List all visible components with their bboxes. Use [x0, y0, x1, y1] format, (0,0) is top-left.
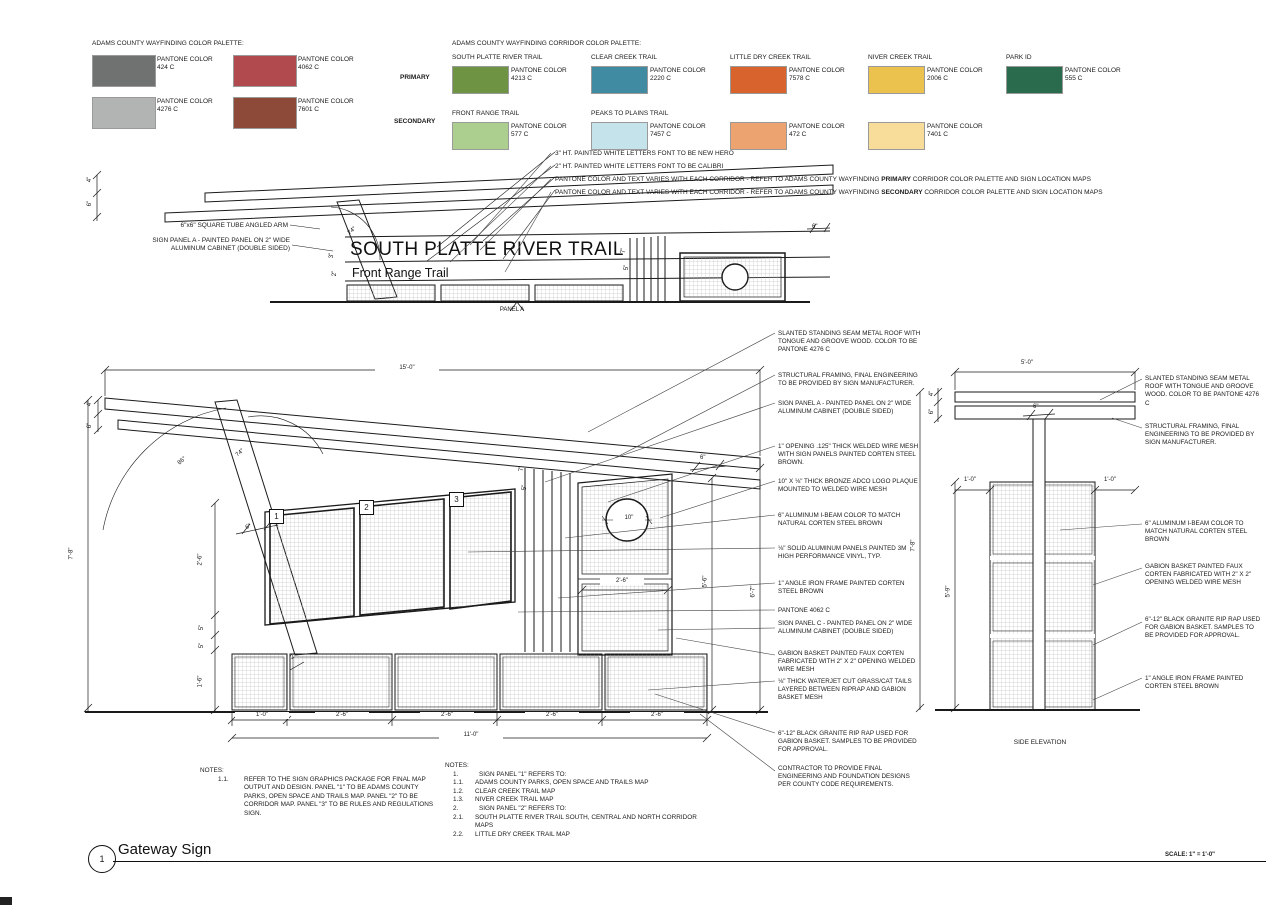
dim: 5"	[522, 485, 529, 490]
swatch-code: 472 C	[789, 131, 806, 138]
dim: 1'-6"	[197, 676, 204, 688]
sign-panel-a-label: SIGN PANEL A - PAINTED PANEL ON 2" WIDEA…	[105, 237, 290, 253]
callout-text: PANTONE 4062 C	[778, 607, 923, 615]
dim-overall-width: 15'-0"	[375, 365, 439, 372]
swatch-2220	[591, 66, 648, 94]
swatch-label: PANTONE COLOR	[298, 98, 354, 105]
dim: 5'-0"	[1000, 360, 1054, 367]
primary-label: PRIMARY	[400, 74, 430, 82]
note-text: NIVER CREEK TRAIL MAP	[475, 796, 745, 805]
callout-text: STRUCTURAL FRAMING, FINAL ENGINEERING TO…	[778, 372, 923, 388]
swatch-7401	[868, 122, 925, 150]
swatch-label: PANTONE COLOR	[650, 123, 706, 130]
trail-name: CLEAR CREEK TRAIL	[591, 54, 657, 62]
swatch-code: 7601 C	[298, 106, 319, 113]
swatch-label: PANTONE COLOR	[298, 56, 354, 63]
dim: 6"	[1033, 404, 1038, 411]
dim: 5'-6"	[702, 576, 709, 588]
dim: 7"	[621, 248, 628, 253]
dim: 7"	[519, 466, 526, 471]
trail-name: LITTLE DRY CREEK TRAIL	[730, 54, 811, 62]
swatch-code: 555 C	[1065, 75, 1082, 82]
callout-text: 6"-12" BLACK GRANITE RIP RAP USED FOR GA…	[778, 730, 923, 755]
note-text: LITTLE DRY CREEK TRAIL MAP	[475, 831, 745, 840]
swatch-7578	[730, 66, 787, 94]
drawing-number-bubble: 1	[88, 845, 116, 873]
panel-number-2: 2	[359, 500, 374, 515]
drawing-title: Gateway Sign	[118, 841, 211, 858]
swatch-4062	[233, 55, 297, 87]
note-number: 2.2.	[453, 831, 475, 840]
dim: 2'-6"	[315, 712, 369, 719]
corridor-palette-title: ADAMS COUNTY WAYFINDING CORRIDOR COLOR P…	[452, 40, 641, 48]
scale-note: SCALE: 1" = 1'-0"	[1100, 852, 1215, 858]
front-elevation-drawing	[78, 322, 778, 772]
swatch-label: PANTONE COLOR	[927, 123, 983, 130]
dim: 1'-0"	[950, 477, 990, 484]
swatch-code: 4213 C	[511, 75, 532, 82]
dim: 2'-6"	[600, 578, 644, 585]
secondary-label: SECONDARY	[394, 118, 435, 126]
dim: 6"	[87, 423, 94, 428]
note-number: 1.	[453, 771, 479, 780]
title-rule	[113, 861, 1266, 862]
callout-text: CONTRACTOR TO PROVIDE FINAL ENGINEERING …	[778, 765, 923, 790]
dim: 2'-6"	[420, 712, 474, 719]
swatch-4213	[452, 66, 509, 94]
swatch-label: PANTONE COLOR	[1065, 67, 1121, 74]
note-number: 2.	[453, 805, 479, 814]
callout-text: ⅛" THICK WATERJET CUT GRASS/CAT TAILS LA…	[778, 678, 923, 703]
swatch-code: 7401 C	[927, 131, 948, 138]
note-number: 2.1.	[453, 814, 475, 831]
note-text: REFER TO THE SIGN GRAPHICS PACKAGE FOR F…	[244, 776, 434, 819]
callout-text: STRUCTURAL FRAMING, FINAL ENGINEERING TO…	[1145, 423, 1263, 448]
dim: 6'-7"	[750, 586, 757, 598]
dim: 5"	[199, 643, 206, 648]
callout-text: 10" X ⅛" THICK BRONZE ADCO LOGO PLAQUE M…	[778, 478, 923, 494]
dim: 1'-0"	[235, 712, 289, 719]
callout-text: GABION BASKET PAINTED FAUX CORTEN FABRIC…	[1145, 563, 1263, 588]
swatch-7601	[233, 97, 297, 129]
arm-label: 6"x6" SQUARE TUBE ANGLED ARM	[100, 222, 288, 230]
callout-text: SIGN PANEL C - PAINTED PANEL ON 2" WIDE …	[778, 620, 923, 636]
callout-text: 1" ANGLE IRON FRAME PAINTED CORTEN STEEL…	[1145, 675, 1263, 691]
note-number: 1.1.	[218, 776, 244, 819]
sign-subtitle-text: Front Range Trail	[352, 266, 449, 280]
note-text: CLEAR CREEK TRAIL MAP	[475, 788, 745, 797]
note-number: 1.3.	[453, 796, 475, 805]
dim: 6"	[929, 409, 936, 414]
swatch-label: PANTONE COLOR	[650, 67, 706, 74]
dim: 7'-8"	[910, 540, 917, 552]
callout-text: 6" ALUMINUM I-BEAM COLOR TO MATCH NATURA…	[778, 512, 923, 528]
dim: 2'-6"	[525, 712, 579, 719]
callout-text: 1" ANGLE IRON FRAME PAINTED CORTEN STEEL…	[778, 580, 923, 596]
swatch-label: PANTONE COLOR	[789, 67, 845, 74]
callout-text: GABION BASKET PAINTED FAUX CORTEN FABRIC…	[778, 650, 923, 675]
note-number: 1.2.	[453, 788, 475, 797]
dim: 6"	[87, 201, 94, 206]
dim: 1'-0"	[1090, 477, 1130, 484]
callout-text: SIGN PANEL A - PAINTED PANEL ON 2" WIDE …	[778, 400, 923, 416]
trail-name: PARK ID	[1006, 54, 1032, 62]
swatch-555	[1006, 66, 1063, 94]
callout-text: 6" ALUMINUM I-BEAM COLOR TO MATCH NATURA…	[1145, 520, 1263, 545]
swatch-code: 2220 C	[650, 75, 671, 82]
dim: 10"	[613, 515, 645, 522]
swatch-code: 2006 C	[927, 75, 948, 82]
side-elevation-caption: SIDE ELEVATION	[990, 739, 1090, 747]
callout-text: 6"-12" BLACK GRANITE RIP RAP USED FOR GA…	[1145, 616, 1263, 641]
dim: 3"	[329, 253, 336, 258]
sheet-corner-mark	[0, 897, 12, 905]
swatch-code: 4062 C	[298, 64, 319, 71]
dim: 2"	[332, 271, 339, 276]
dim: 11'-0"	[439, 732, 503, 739]
dim: 6"	[812, 224, 817, 231]
swatch-code: 424 C	[157, 64, 174, 71]
swatch-code: 577 C	[511, 131, 528, 138]
callout-text: ⅛" SOLID ALUMINUM PANELS PAINTED 3M HIGH…	[778, 545, 923, 561]
swatch-label: PANTONE COLOR	[157, 56, 213, 63]
swatch-code: 7578 C	[789, 75, 810, 82]
dim: 5'-9"	[945, 586, 952, 598]
dim: 2'-6"	[630, 712, 684, 719]
callout-text: 1" OPENING .125" THICK WELDED WIRE MESH …	[778, 443, 923, 468]
dim: 4"	[87, 401, 94, 406]
dim: 5"	[199, 625, 206, 630]
dim: 2'-6"	[197, 554, 204, 566]
trail-name: PEAKS TO PLAINS TRAIL	[591, 110, 668, 118]
panel-a-label: PANEL A	[482, 307, 542, 314]
swatch-label: PANTONE COLOR	[927, 67, 983, 74]
dim-overall-height: 7'-8"	[68, 548, 75, 560]
callout-text: SLANTED STANDING SEAM METAL ROOF WITH TO…	[1145, 375, 1263, 408]
swatch-label: PANTONE COLOR	[511, 67, 567, 74]
swatch-code: 4276 C	[157, 106, 178, 113]
dim: 6"	[700, 455, 705, 462]
trail-name: NIVER CREEK TRAIL	[868, 54, 932, 62]
swatch-code: 7457 C	[650, 131, 671, 138]
trail-name: SOUTH PLATTE RIVER TRAIL	[452, 54, 542, 62]
dim: 5"	[624, 265, 631, 270]
dim: 4"	[929, 391, 936, 396]
notes-title: NOTES:	[200, 767, 450, 776]
note-text: SIGN PANEL "1" REFERS TO:	[479, 771, 745, 780]
note-text: SOUTH PLATTE RIVER TRAIL SOUTH, CENTRAL …	[475, 814, 705, 831]
swatch-424	[92, 55, 156, 87]
notes-left: NOTES: 1.1. REFER TO THE SIGN GRAPHICS P…	[200, 767, 450, 819]
trail-name: FRONT RANGE TRAIL	[452, 110, 519, 118]
side-elevation-drawing	[905, 358, 1145, 753]
palette-title: ADAMS COUNTY WAYFINDING COLOR PALETTE:	[92, 40, 244, 48]
swatch-2006	[868, 66, 925, 94]
notes-title: NOTES:	[445, 762, 745, 771]
panel-number-1: 1	[269, 509, 284, 524]
note-number: 1.1.	[453, 779, 475, 788]
panel-number-3: 3	[449, 492, 464, 507]
notes-right: NOTES: 1.SIGN PANEL "1" REFERS TO: 1.1.A…	[445, 762, 745, 839]
swatch-4276	[92, 97, 156, 129]
sign-title-text: SOUTH PLATTE RIVER TRAIL	[350, 239, 624, 261]
panel-a-detail-drawing	[85, 145, 835, 320]
swatch-label: PANTONE COLOR	[157, 98, 213, 105]
callout-text: SLANTED STANDING SEAM METAL ROOF WITH TO…	[778, 330, 923, 355]
drawing-sheet: ADAMS COUNTY WAYFINDING COLOR PALETTE: P…	[0, 0, 1270, 905]
swatch-label: PANTONE COLOR	[511, 123, 567, 130]
swatch-label: PANTONE COLOR	[789, 123, 845, 130]
dim: 4"	[87, 177, 94, 182]
note-text: SIGN PANEL "2" REFERS TO:	[479, 805, 745, 814]
note-text: ADAMS COUNTY PARKS, OPEN SPACE AND TRAIL…	[475, 779, 745, 788]
